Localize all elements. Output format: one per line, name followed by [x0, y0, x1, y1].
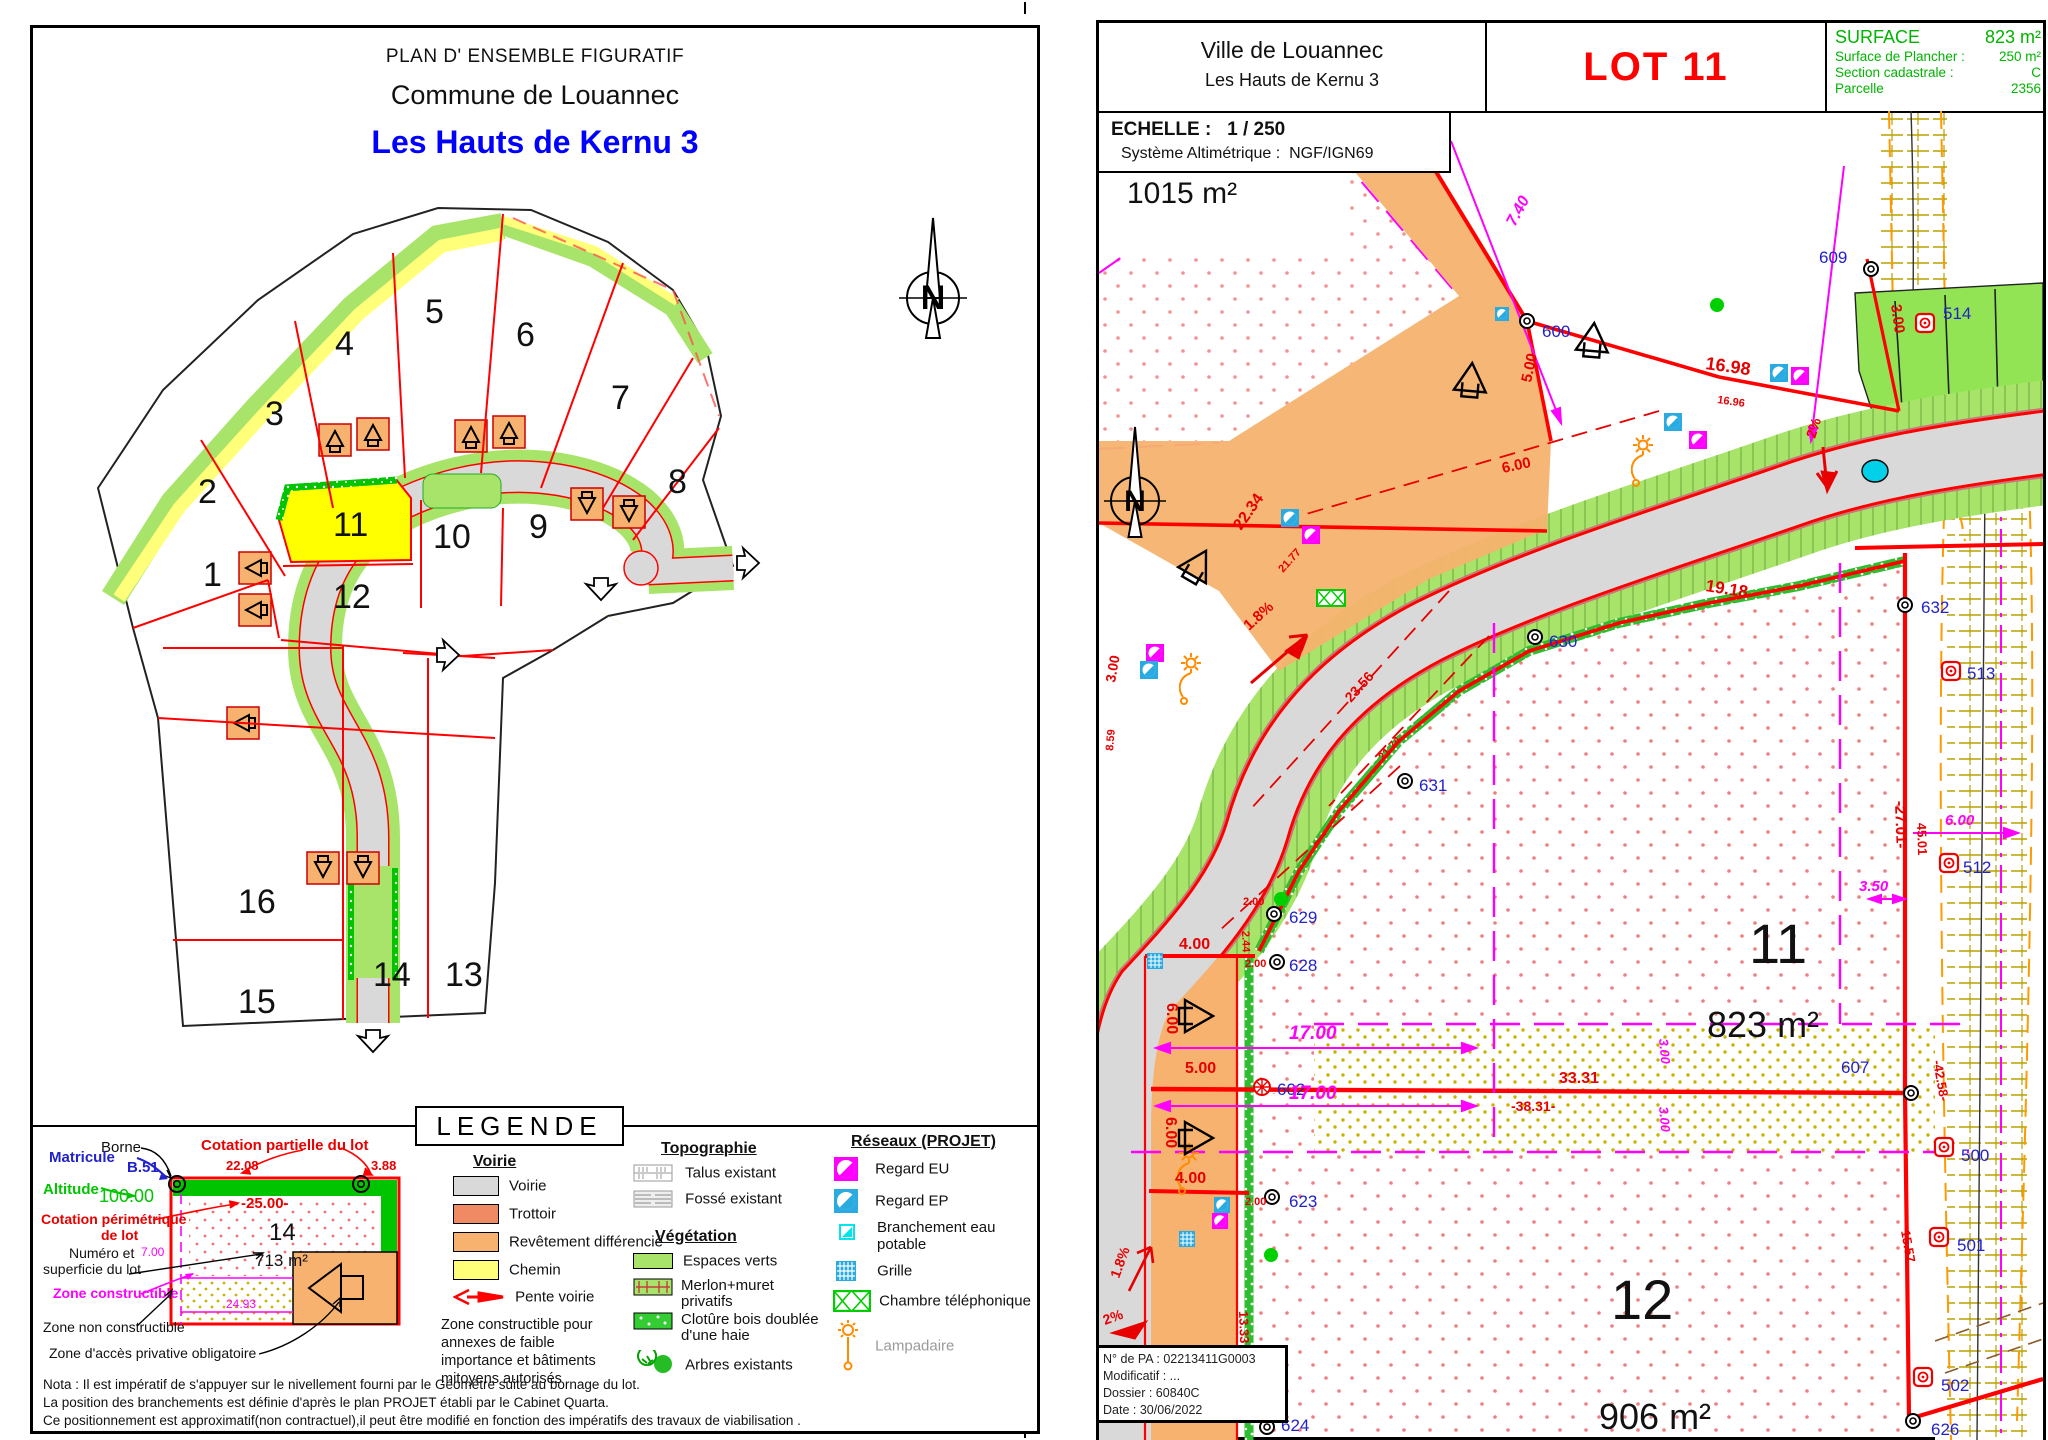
svg-text:623: 623 [1289, 1192, 1317, 1211]
svg-text:513: 513 [1967, 664, 1995, 683]
svg-text:2: 2 [198, 473, 217, 511]
svg-text:10: 10 [433, 518, 471, 556]
svg-text:609: 609 [1819, 248, 1847, 267]
left-panel: PLAN D' ENSEMBLE FIGURATIF Commune de Lo… [30, 25, 1040, 1434]
svg-text:45.01: 45.01 [1914, 823, 1930, 856]
svg-text:3.00: 3.00 [1656, 1038, 1673, 1065]
svg-text:3.00: 3.00 [1656, 1106, 1673, 1133]
commune-title: Commune de Louannec [33, 80, 1037, 111]
permit-number: N° de PA : 02213411G0003 [1103, 1351, 1281, 1368]
svg-text:501: 501 [1957, 1236, 1985, 1255]
section-label: Section cadastrale : [1835, 65, 1954, 80]
subdivision-name: Les Hauts de Kernu 3 [1099, 70, 1485, 91]
lot11-area: 823 m² [1707, 1004, 1819, 1045]
svg-text:24.93: 24.93 [226, 1297, 256, 1311]
right-header: Ville de Louannec Les Hauts de Kernu 3 L… [1099, 23, 2043, 113]
svg-text:631: 631 [1419, 776, 1447, 795]
legend-title: LEGENDE [415, 1106, 624, 1146]
legend-item-voirie: Voirie [453, 1176, 547, 1196]
svg-text:13.33: 13.33 [1236, 1311, 1252, 1344]
svg-text:12: 12 [333, 578, 371, 616]
surface-table: SURFACE823 m² Surface de Plancher :250 m… [1827, 23, 2048, 111]
svg-text:500: 500 [1961, 1146, 1989, 1165]
site-boundary [98, 208, 733, 1026]
svg-text:16.96: 16.96 [1717, 394, 1746, 410]
svg-text:3.88: 3.88 [371, 1158, 396, 1173]
lot11-map[interactable]: 1015 m² P [1099, 111, 2043, 1440]
svg-text:13: 13 [445, 956, 483, 994]
legend-item-talus: Talus existant [633, 1164, 776, 1182]
plancher-label: Surface de Plancher : [1835, 49, 1965, 64]
surface-label: SURFACE [1835, 27, 1920, 48]
plancher-value: 250 m² [1999, 49, 2041, 64]
svg-text:N: N [921, 279, 946, 317]
section-value: C [2031, 65, 2041, 80]
lot12-area: 906 m² [1599, 1396, 1711, 1437]
legend-item-pente-voirie: Pente voirie [453, 1288, 594, 1306]
pente-voirie-arrow [453, 1288, 505, 1306]
svg-text:1: 1 [203, 556, 222, 594]
plan-title: PLAN D' ENSEMBLE FIGURATIF [33, 46, 1037, 68]
svg-text:630: 630 [1549, 632, 1577, 651]
svg-text:Matricule: Matricule [49, 1149, 115, 1166]
svg-text:Altitude: Altitude [43, 1181, 99, 1198]
lot-title: LOT 11 [1487, 23, 1827, 111]
svg-text:6.00: 6.00 [1945, 812, 1975, 829]
legend-item-espaces-verts: Espaces verts [633, 1252, 777, 1270]
right-panel: Ville de Louannec Les Hauts de Kernu 3 L… [1096, 20, 2046, 1440]
permit-info-box: N° de PA : 02213411G0003 Modificatif : .… [1096, 1345, 1288, 1423]
svg-text:17.00: 17.00 [1289, 1083, 1337, 1104]
surface-value: 823 m² [1985, 27, 2041, 48]
svg-text:15: 15 [238, 983, 276, 1021]
permit-date: Date : 30/06/2022 [1103, 1402, 1281, 1419]
svg-text:11: 11 [333, 506, 368, 544]
legend-item-revetement: Revêtement différencié [453, 1232, 663, 1252]
legend-item-fosse: Fossé existant [633, 1190, 782, 1208]
svg-text:3: 3 [265, 395, 284, 433]
svg-text:2.00: 2.00 [1245, 958, 1266, 970]
svg-text:Numéro et: Numéro et [69, 1245, 134, 1261]
svg-text:512: 512 [1963, 858, 1991, 877]
svg-text:6: 6 [516, 316, 535, 354]
legend-item-branchement: Branchement eau potable [833, 1220, 1003, 1253]
svg-text:5: 5 [425, 293, 444, 331]
svg-text:6.00: 6.00 [1163, 1003, 1180, 1034]
svg-text:629: 629 [1289, 908, 1317, 927]
svg-text:4.00: 4.00 [1175, 1170, 1206, 1187]
plan-page: PLAN D' ENSEMBLE FIGURATIF Commune de Lo… [0, 0, 2048, 1440]
svg-text:8.59: 8.59 [1104, 729, 1118, 751]
legend-item-cloture: Clotûre bois doublée d'une haie [633, 1312, 833, 1344]
svg-text:514: 514 [1943, 304, 1971, 323]
svg-text:-25.00-: -25.00- [241, 1195, 289, 1212]
svg-text:4: 4 [335, 325, 354, 363]
svg-text:Cotation périmétrique: Cotation périmétrique [41, 1211, 187, 1227]
lot12-number: 12 [1611, 1268, 1673, 1331]
legend-item-regard-ep: Regard EP [833, 1188, 949, 1214]
svg-text:Zone non constructible: Zone non constructible [43, 1319, 185, 1335]
svg-text:6.00: 6.00 [1162, 1117, 1179, 1148]
legend-topographie-heading: Topographie [661, 1140, 757, 1158]
svg-text:632: 632 [1921, 598, 1949, 617]
legend-voirie-heading: Voirie [473, 1153, 516, 1171]
subdivision-title: Les Hauts de Kernu 3 [33, 124, 1037, 161]
legend-item-chambre-tel: Chambre téléphonique [833, 1290, 1031, 1312]
svg-text:2.00: 2.00 [1243, 896, 1264, 908]
city-name: Ville de Louannec [1099, 37, 1485, 64]
svg-text:4.00: 4.00 [1179, 936, 1210, 953]
svg-text:-27.01-: -27.01- [1891, 801, 1910, 849]
permit-dossier: Dossier : 60840C [1103, 1385, 1281, 1402]
svg-text:8: 8 [668, 463, 687, 501]
svg-text:607: 607 [1841, 1058, 1869, 1077]
lampadaire-icon [833, 1320, 863, 1372]
svg-text:7.40: 7.40 [1504, 193, 1534, 229]
svg-text:628: 628 [1289, 956, 1317, 975]
legend-item-grille: Grille [833, 1260, 912, 1282]
hedge-corridor [1947, 481, 2027, 1440]
svg-text:600: 600 [1542, 322, 1570, 341]
svg-text:14: 14 [373, 956, 411, 994]
svg-text:5.00: 5.00 [1185, 1060, 1216, 1077]
svg-text:superficie du lot: superficie du lot [43, 1261, 141, 1277]
parcelle-value: 2356 [2011, 81, 2041, 96]
permit-modificatif: Modificatif : ... [1103, 1368, 1281, 1385]
svg-text:7: 7 [611, 379, 630, 417]
lot11-number: 11 [1749, 912, 1807, 975]
svg-text:N: N [1124, 485, 1146, 518]
legend-item-regard-eu: Regard EU [833, 1156, 949, 1182]
svg-text:9: 9 [529, 508, 548, 546]
svg-text:502: 502 [1941, 1376, 1969, 1395]
nota-text: Nota : Il est impératif de s'appuyer sur… [43, 1376, 1033, 1431]
legend-sample-diagram: 22.08 3.88 -25.00- 14 713 m² 7.00 24.93 … [41, 1136, 441, 1376]
scale-box: ECHELLE : 1 / 250 Système Altimétrique :… [1099, 111, 1451, 173]
svg-text:2.44: 2.44 [1239, 931, 1252, 954]
parcel-1015-area: 1015 m² [1127, 177, 1237, 210]
legend-item-trottoir: Trottoir [453, 1204, 556, 1224]
svg-text:2.00: 2.00 [1245, 1196, 1266, 1208]
fold-mark-top [1024, 2, 1026, 14]
svg-text:3.50: 3.50 [1859, 878, 1889, 895]
header-city-cell: Ville de Louannec Les Hauts de Kernu 3 [1099, 23, 1487, 111]
svg-text:-38.31-: -38.31- [1511, 1098, 1556, 1114]
svg-text:7.00: 7.00 [141, 1245, 165, 1259]
svg-text:Zone d'accès privative obligat: Zone d'accès privative obligatoire [49, 1345, 257, 1361]
svg-text:626: 626 [1931, 1420, 1959, 1439]
parcelle-label: Parcelle [1835, 81, 1884, 96]
overview-map[interactable]: 1 2 3 4 5 6 7 8 9 10 11 12 13 14 15 16 [33, 178, 1041, 1118]
svg-text:14: 14 [269, 1219, 296, 1246]
svg-text:Zone constructible: Zone constructible [53, 1285, 178, 1301]
legend-reseaux-heading: Réseaux (PROJET) [851, 1133, 996, 1151]
svg-text:16: 16 [238, 883, 276, 921]
svg-text:17.00: 17.00 [1289, 1023, 1337, 1044]
svg-text:3.00: 3.00 [1102, 654, 1123, 684]
svg-text:Cotation partielle du lot: Cotation partielle du lot [201, 1137, 369, 1154]
svg-text:de lot: de lot [101, 1227, 139, 1243]
svg-text:33.31: 33.31 [1559, 1070, 1599, 1087]
legend-item-merlon: Merlon+muret privatifs [633, 1278, 823, 1310]
north-compass: N [899, 218, 967, 338]
legend-item-lampadaire: Lampadaire [833, 1320, 954, 1372]
legend-vegetation-heading: Végétation [655, 1228, 737, 1246]
legend-item-chemin: Chemin [453, 1260, 561, 1280]
